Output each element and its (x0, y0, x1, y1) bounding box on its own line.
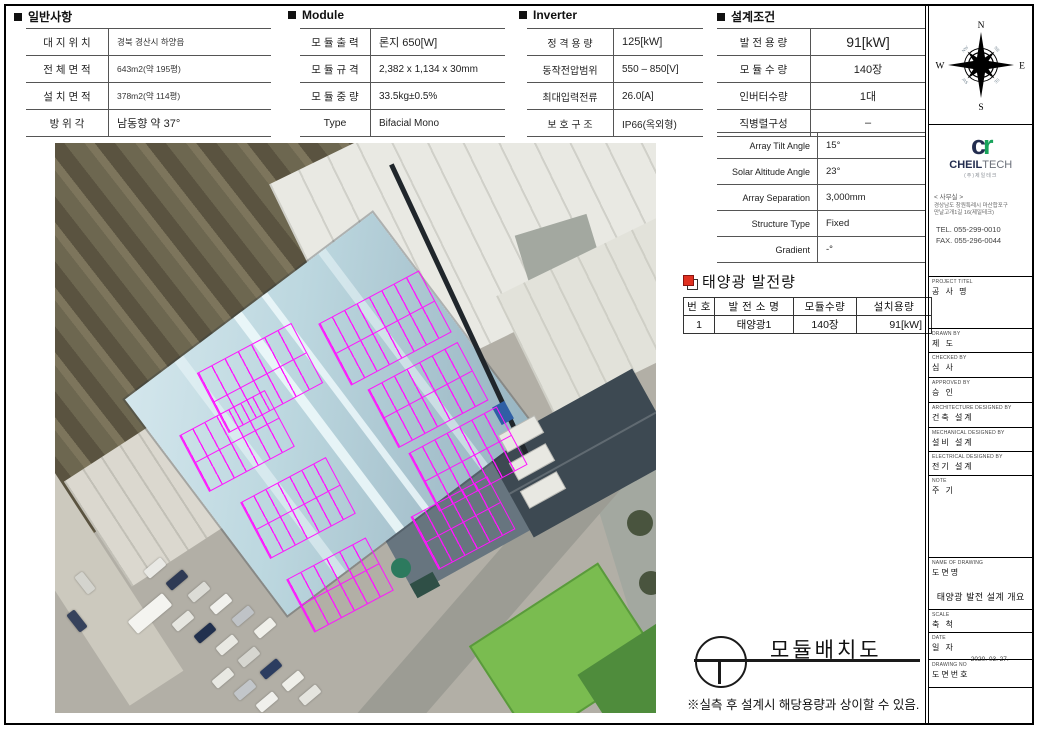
section-label-en: ARCHITECTURE DESIGNED BY (932, 405, 1030, 411)
svg-text:SW: SW (960, 76, 969, 85)
generation-cell: 140장 (794, 316, 857, 334)
section-label-ko: 축 척 (932, 619, 1030, 630)
module-section-title: Module (288, 8, 344, 22)
car (255, 691, 278, 713)
row-value: – (811, 117, 925, 129)
generation-col-header: 발 전 소 명 (715, 298, 794, 316)
car (231, 605, 254, 627)
table-row: 최대입력전류26.0[A] (527, 82, 703, 109)
row-value: 남동향 약 37° (109, 115, 180, 131)
row-label: 대 지 위 치 (26, 29, 109, 55)
section-label-ko: 도면번호 (932, 669, 1030, 680)
section-label-en: ELECTRICAL DESIGNED BY (932, 454, 1030, 460)
compass-box: N S E W NE SE SW NW (929, 6, 1033, 125)
row-value: 140장 (811, 61, 925, 77)
title-block-section (929, 688, 1033, 723)
aerial-photo (55, 143, 656, 713)
table-row: Structure TypeFixed (717, 210, 925, 236)
company-box: cr CHEILTECH (주)제일테크 < 사무실 > 경상남도 창원특례시 … (929, 125, 1033, 277)
title-block-section: APPROVED BY승 인 (929, 378, 1033, 403)
table-row: Gradient-° (717, 236, 925, 263)
bullet-square-icon (519, 11, 527, 19)
section-label-ko: 심 사 (932, 362, 1030, 373)
table-row: 발 전 용 량91[kW] (717, 28, 925, 55)
design-table-detail: Array Tilt Angle15°Solar Altitude Angle2… (717, 132, 925, 263)
company-name-korean: (주)제일테크 (932, 172, 1030, 179)
row-value: 91[kW] (811, 34, 925, 50)
tank (391, 558, 411, 578)
row-label: Array Separation (717, 185, 818, 210)
bullet-square-icon (288, 11, 296, 19)
row-value: 23° (818, 166, 840, 177)
compass-rose-icon: N S E W NE SE SW NW (935, 10, 1027, 120)
car (187, 581, 210, 603)
row-value: 550 – 850[V] (614, 64, 679, 75)
row-value: 3,000mm (818, 192, 866, 203)
car (253, 617, 276, 639)
module-table: 모 듈 출 력론지 650[W]모 듈 규 격2,382 x 1,134 x 3… (300, 28, 505, 137)
design-table-main: 발 전 용 량91[kW]모 듈 수 량140장인버터수량1대직병렬구성– (717, 28, 925, 137)
section-label-en: APPROVED BY (932, 380, 1030, 386)
drawing-title: 모듈배치도 (770, 634, 882, 664)
title-block-section: ELECTRICAL DESIGNED BY전기 설계 (929, 452, 1033, 476)
tree (627, 510, 653, 536)
title-block-section: SCALE축 척 (929, 610, 1033, 633)
section-value: 태양광 발전 설계 개요 (932, 590, 1030, 603)
title-block-section: ARCHITECTURE DESIGNED BY건축 설계 (929, 403, 1033, 428)
row-value: 125[kW] (614, 36, 662, 48)
row-label: 보 호 구 조 (527, 110, 614, 136)
section-label-en: NOTE (932, 478, 1030, 484)
row-label: Type (300, 110, 371, 136)
row-value: 33.5kg±0.5% (371, 91, 437, 102)
svg-text:S: S (978, 103, 983, 113)
table-row: 모 듈 출 력론지 650[W] (300, 28, 505, 55)
section-label-en: CHECKED BY (932, 355, 1030, 361)
row-value: -° (818, 244, 833, 255)
title-block-section: NOTE주 기 (929, 476, 1033, 558)
design-section-title: 설계조건 (717, 8, 775, 25)
drawing-title-symbol (695, 636, 747, 688)
table-row: Array Tilt Angle15° (717, 132, 925, 158)
table-row: 인버터수량1대 (717, 82, 925, 109)
title-block-section: NAME OF DRAWING도면명태양광 발전 설계 개요 (929, 558, 1033, 610)
table-row: 동작전압범위550 – 850[V] (527, 55, 703, 82)
section-label-ko: 제 도 (932, 338, 1030, 349)
row-label: 전 체 면 적 (26, 56, 109, 82)
sidebar-divider-line (925, 6, 926, 723)
general-table: 대 지 위 치경북 경산시 하양읍전 체 면 적643m2(약 195평)설 치… (26, 28, 271, 137)
car (165, 569, 188, 591)
row-label: Array Tilt Angle (717, 133, 818, 158)
section-label-ko: 공 사 명 (932, 286, 1030, 297)
table-row: Solar Altitude Angle23° (717, 158, 925, 184)
section-label-ko: 건축 설계 (932, 412, 1030, 423)
inverter-table: 정 격 용 량125[kW]동작전압범위550 – 850[V]최대입력전류26… (527, 28, 703, 137)
table-row: 보 호 구 조IP66(옥외형) (527, 109, 703, 137)
section-label-en: MECHANICAL DESIGNED BY (932, 430, 1030, 436)
row-value: IP66(옥외형) (614, 116, 677, 131)
generation-table: 번 호발 전 소 명모듈수량설치용량1태양광1140장91[kW] (683, 297, 932, 334)
drawing-title-symbol-tick (718, 661, 721, 684)
generation-cell: 1 (684, 316, 715, 334)
svg-text:NW: NW (960, 44, 969, 53)
generation-col-header: 설치용량 (857, 298, 932, 316)
car (209, 593, 232, 615)
section-label-ko: 주 기 (932, 485, 1030, 496)
svg-text:NE: NE (993, 45, 1001, 53)
title-block-section: MECHANICAL DESIGNED BY설비 설계 (929, 428, 1033, 452)
generation-col-header: 번 호 (684, 298, 715, 316)
car (237, 646, 260, 668)
table-row: 설 치 면 적378m2(약 114평) (26, 82, 271, 109)
section-label-ko: 전기 설계 (932, 461, 1030, 472)
row-label: 발 전 용 량 (717, 29, 811, 55)
row-label: 모 듈 수 량 (717, 56, 811, 82)
car (281, 670, 304, 692)
row-value: 15° (818, 140, 840, 151)
car (193, 622, 216, 644)
table-row: TypeBifacial Mono (300, 109, 505, 137)
car (259, 658, 282, 680)
row-value: Bifacial Mono (371, 118, 439, 129)
section-label-ko: 설비 설계 (932, 437, 1030, 448)
table-row: 모 듈 수 량140장 (717, 55, 925, 82)
row-value: 2,382 x 1,134 x 30mm (371, 64, 478, 75)
section-label-en: NAME OF DRAWING (932, 560, 1030, 566)
svg-text:W: W (935, 62, 944, 72)
svg-text:E: E (1019, 62, 1025, 72)
generation-section-title: 태양광 발전량 (683, 271, 796, 292)
row-label: 모 듈 출 력 (300, 29, 371, 55)
row-value: 론지 650[W] (371, 34, 437, 50)
row-label: 정 격 용 량 (527, 29, 614, 55)
tree (639, 571, 656, 595)
row-label: 최대입력전류 (527, 83, 614, 109)
svg-text:N: N (977, 21, 984, 31)
company-address: 경상남도 창원특례시 마산합포구만날고개1길 16(제일테크) (932, 203, 1030, 217)
generation-cell: 태양광1 (715, 316, 794, 334)
section-label-en: DRAWING NO (932, 662, 1030, 668)
title-block-section: DRAWING NO도면번호 (929, 660, 1033, 688)
row-value: Fixed (818, 218, 849, 229)
svg-text:SE: SE (993, 77, 1000, 84)
bullet-square-icon (717, 13, 725, 21)
table-row: 모 듈 규 격2,382 x 1,134 x 30mm (300, 55, 505, 82)
title-block: N S E W NE SE SW NW cr CHEILTECH (주)제일테크… (928, 6, 1033, 723)
car (233, 679, 256, 701)
table-row: 모 듈 중 량33.5kg±0.5% (300, 82, 505, 109)
row-label: 방 위 각 (26, 110, 109, 136)
car (215, 634, 238, 656)
section-label-en: DATE (932, 635, 1030, 641)
row-label: 설 치 면 적 (26, 83, 109, 109)
row-value: 26.0[A] (614, 91, 654, 102)
general-section-title: 일반사항 (14, 8, 72, 25)
generation-col-header: 모듈수량 (794, 298, 857, 316)
company-name: CHEILTECH (932, 159, 1030, 171)
inverter-section-title: Inverter (519, 8, 577, 22)
car (298, 684, 321, 706)
row-label: Structure Type (717, 211, 818, 236)
title-block-section: DRAWN BY제 도 (929, 329, 1033, 353)
table-row: Array Separation3,000mm (717, 184, 925, 210)
table-row: 방 위 각남동향 약 37° (26, 109, 271, 137)
row-label: 동작전압범위 (527, 56, 614, 82)
section-label-ko: 일 자 (932, 642, 1030, 653)
row-value: 378m2(약 114평) (109, 90, 180, 102)
section-label-en: DRAWN BY (932, 331, 1030, 337)
row-label: 모 듈 중 량 (300, 83, 371, 109)
section-label-ko: 도면명 (932, 567, 1030, 578)
section-label-ko: 승 인 (932, 387, 1030, 398)
generation-row: 1태양광1140장91[kW] (684, 316, 932, 334)
row-label: 모 듈 규 격 (300, 56, 371, 82)
table-row: 대 지 위 치경북 경산시 하양읍 (26, 28, 271, 55)
table-row: 전 체 면 적643m2(약 195평) (26, 55, 271, 82)
row-label: 인버터수량 (717, 83, 811, 109)
title-block-section: CHECKED BY심 사 (929, 353, 1033, 378)
row-label: Solar Altitude Angle (717, 159, 818, 184)
office-label: < 사무실 > (932, 191, 1030, 201)
row-label: Gradient (717, 237, 818, 262)
company-contact: TEL. 055-299-0010FAX. 055-296-0044 (932, 224, 1030, 246)
layers-icon (683, 275, 697, 289)
car (171, 610, 194, 632)
title-block-section: PROJECT TITEL공 사 명 (929, 277, 1033, 329)
table-row: 정 격 용 량125[kW] (527, 28, 703, 55)
bullet-square-icon (14, 13, 22, 21)
disclaimer-note: ※실측 후 설계시 해당용량과 상이할 수 있음. (687, 694, 919, 713)
title-block-section: DATE일 자2020. 03. 27. (929, 633, 1033, 660)
row-value: 643m2(약 195평) (109, 63, 181, 75)
car (211, 667, 234, 689)
section-label-en: SCALE (932, 612, 1030, 618)
row-value: 경북 경산시 하양읍 (109, 36, 184, 48)
company-logo: cr (932, 133, 1030, 157)
section-label-en: PROJECT TITEL (932, 279, 1030, 285)
row-value: 1대 (811, 88, 925, 104)
generation-cell: 91[kW] (857, 316, 932, 334)
